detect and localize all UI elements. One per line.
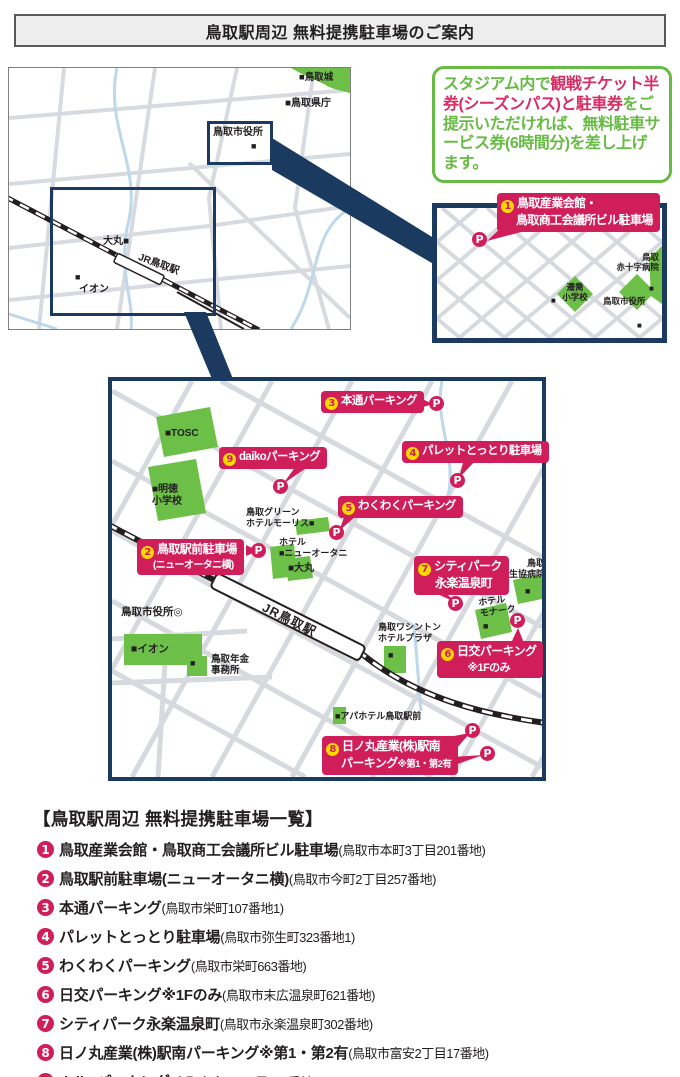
list-item-3: 3 本通パーキング(鳥取市栄町107番地1) [37, 897, 663, 918]
p-marker-8a: P [465, 723, 480, 738]
list-bullet-7: 7 [37, 1015, 54, 1032]
p-marker-7: P [448, 596, 463, 611]
callout-1-number: 1 [501, 200, 514, 213]
list-item-6: 6 日交パーキング※1Fのみ(鳥取市末広温泉町621番地) [37, 984, 663, 1005]
overview-map: ■鳥取城 ■鳥取県庁 鳥取市役所 ■ 大丸■ JR鳥取駅 ■ イオン [8, 67, 351, 330]
callout-2-number: 2 [141, 546, 154, 559]
cityhall-label: 鳥取市役所 [213, 127, 263, 139]
list-bullet-6: 6 [37, 986, 54, 1003]
tosc-label: ■TOSC [165, 428, 199, 440]
p-marker-3: P [429, 396, 444, 411]
list-item-4: 4 パレットとっとり駐車場(鳥取市弥生町323番地1) [37, 926, 663, 947]
callout-6-number: 6 [441, 648, 454, 661]
coop-square: ■ [525, 587, 530, 596]
p-marker-5: P [329, 525, 344, 540]
list-item-1: 1 鳥取産業会館・鳥取商工会議所ビル駐車場(鳥取市本町3丁目201番地) [37, 839, 663, 860]
callout-8: 8日ノ丸産業(株)駅南 パーキング※第1・第2有 [322, 736, 458, 775]
callout-4-number: 4 [406, 447, 419, 460]
page-title: 鳥取駅周辺 無料提携駐車場のご案内 [14, 14, 666, 47]
prefecture-label: ■鳥取県庁 [285, 98, 331, 110]
p-marker-8b: P [480, 746, 495, 761]
callout-3: 3本通パーキング [321, 391, 424, 413]
castle-label: ■鳥取城 [299, 72, 333, 83]
callout-8-number: 8 [326, 743, 339, 756]
parking-list-heading: 【鳥取駅周辺 無料提携駐車場一覧】 [33, 806, 663, 831]
notice-green-prefix: スタジアム内で [443, 76, 550, 93]
inset-cityhall-label: 鳥取市役所 [603, 296, 646, 306]
school-square: ■ [551, 297, 556, 305]
list-bullet-5: 5 [37, 957, 54, 974]
greenhotel-label: 鳥取グリーン ホテルモーリス■ [246, 507, 314, 528]
cityhall-square: ■ [251, 142, 256, 151]
redcross-label: 鳥取 赤十字病院 [587, 252, 659, 272]
apa-label: ■アパホテル鳥取駅前 [335, 711, 421, 722]
list-item-9: 9 daikoパーキング(鳥取市今町1丁目124番地) [37, 1071, 663, 1077]
parking-guide-flyer: 鳥取駅周辺 無料提携駐車場のご案内 ■鳥取城 ■ [0, 0, 680, 1077]
aeon-main-label: ■イオン [131, 643, 169, 655]
callout-3-number: 3 [325, 397, 338, 410]
p-marker-4: P [450, 473, 465, 488]
list-item-8: 8 日ノ丸産業(株)駅南パーキング※第1・第2有(鳥取市富安2丁目17番地) [37, 1042, 663, 1063]
list-bullet-1: 1 [37, 841, 54, 858]
callout-4: 4パレットとっとり駐車場 [402, 441, 549, 463]
pension-square: ■ [190, 659, 195, 668]
callout-2: 2鳥取駅前駐車場 (ニューオータニ横) [137, 539, 244, 575]
callout-7-number: 7 [418, 563, 431, 576]
p-marker-9: P [273, 479, 288, 494]
list-item-5: 5 わくわくパーキング(鳥取市栄町663番地) [37, 955, 663, 976]
meitoku-label: ■明徳 小学校 [152, 484, 182, 508]
redcross-square: ■ [649, 285, 654, 293]
pension-label: 鳥取年金 事務所 [211, 654, 249, 676]
daimaru-main-label: ■大丸 [288, 563, 314, 575]
callout-9-number: 9 [223, 453, 236, 466]
main-source-rect [50, 187, 216, 316]
cityhall-main-label: 鳥取市役所◎ [121, 606, 183, 618]
list-bullet-3: 3 [37, 899, 54, 916]
stadium-ticket-notice: スタジアム内で観戦チケット半券(シーズンパス)と駐車券をご提示いただければ、無料… [432, 66, 672, 183]
washington-label: 鳥取ワシントン ホテルプラザ [378, 622, 441, 643]
callout-5: 5わくわくパーキング [338, 496, 463, 518]
washington-square: ■ [388, 651, 393, 660]
monarch-square: ■ [483, 622, 488, 631]
p-marker-1: P [472, 232, 487, 247]
callout-6: 6日交パーキング ※1Fのみ [437, 641, 543, 678]
p-marker-2: P [251, 543, 266, 558]
list-bullet-8: 8 [37, 1044, 54, 1061]
callout-5-number: 5 [342, 502, 355, 515]
parking-list: 【鳥取駅周辺 無料提携駐車場一覧】 1 鳥取産業会館・鳥取商工会議所ビル駐車場(… [33, 806, 663, 1077]
list-item-7: 7 シティパーク永楽温泉町(鳥取市永楽温泉町302番地) [37, 1013, 663, 1034]
callout-1: 1鳥取産業会館・ 鳥取商工会議所ビル駐車場 [497, 193, 660, 232]
list-item-2: 2 鳥取駅前駐車場(ニューオータニ横)(鳥取市今町2丁目257番地) [37, 868, 663, 889]
p-marker-6: P [510, 613, 525, 628]
school-label: 遷喬 小学校 [555, 282, 595, 302]
callout-7: 7シティパーク 永楽温泉町 [414, 556, 509, 595]
list-bullet-2: 2 [37, 870, 54, 887]
callout-9: 9daikoパーキング [219, 447, 327, 469]
list-bullet-9: 9 [37, 1073, 54, 1077]
list-bullet-4: 4 [37, 928, 54, 945]
inset-cityhall-square: ■ [637, 322, 642, 330]
newotani-label: ホテル ■ニューオータニ [279, 537, 347, 558]
